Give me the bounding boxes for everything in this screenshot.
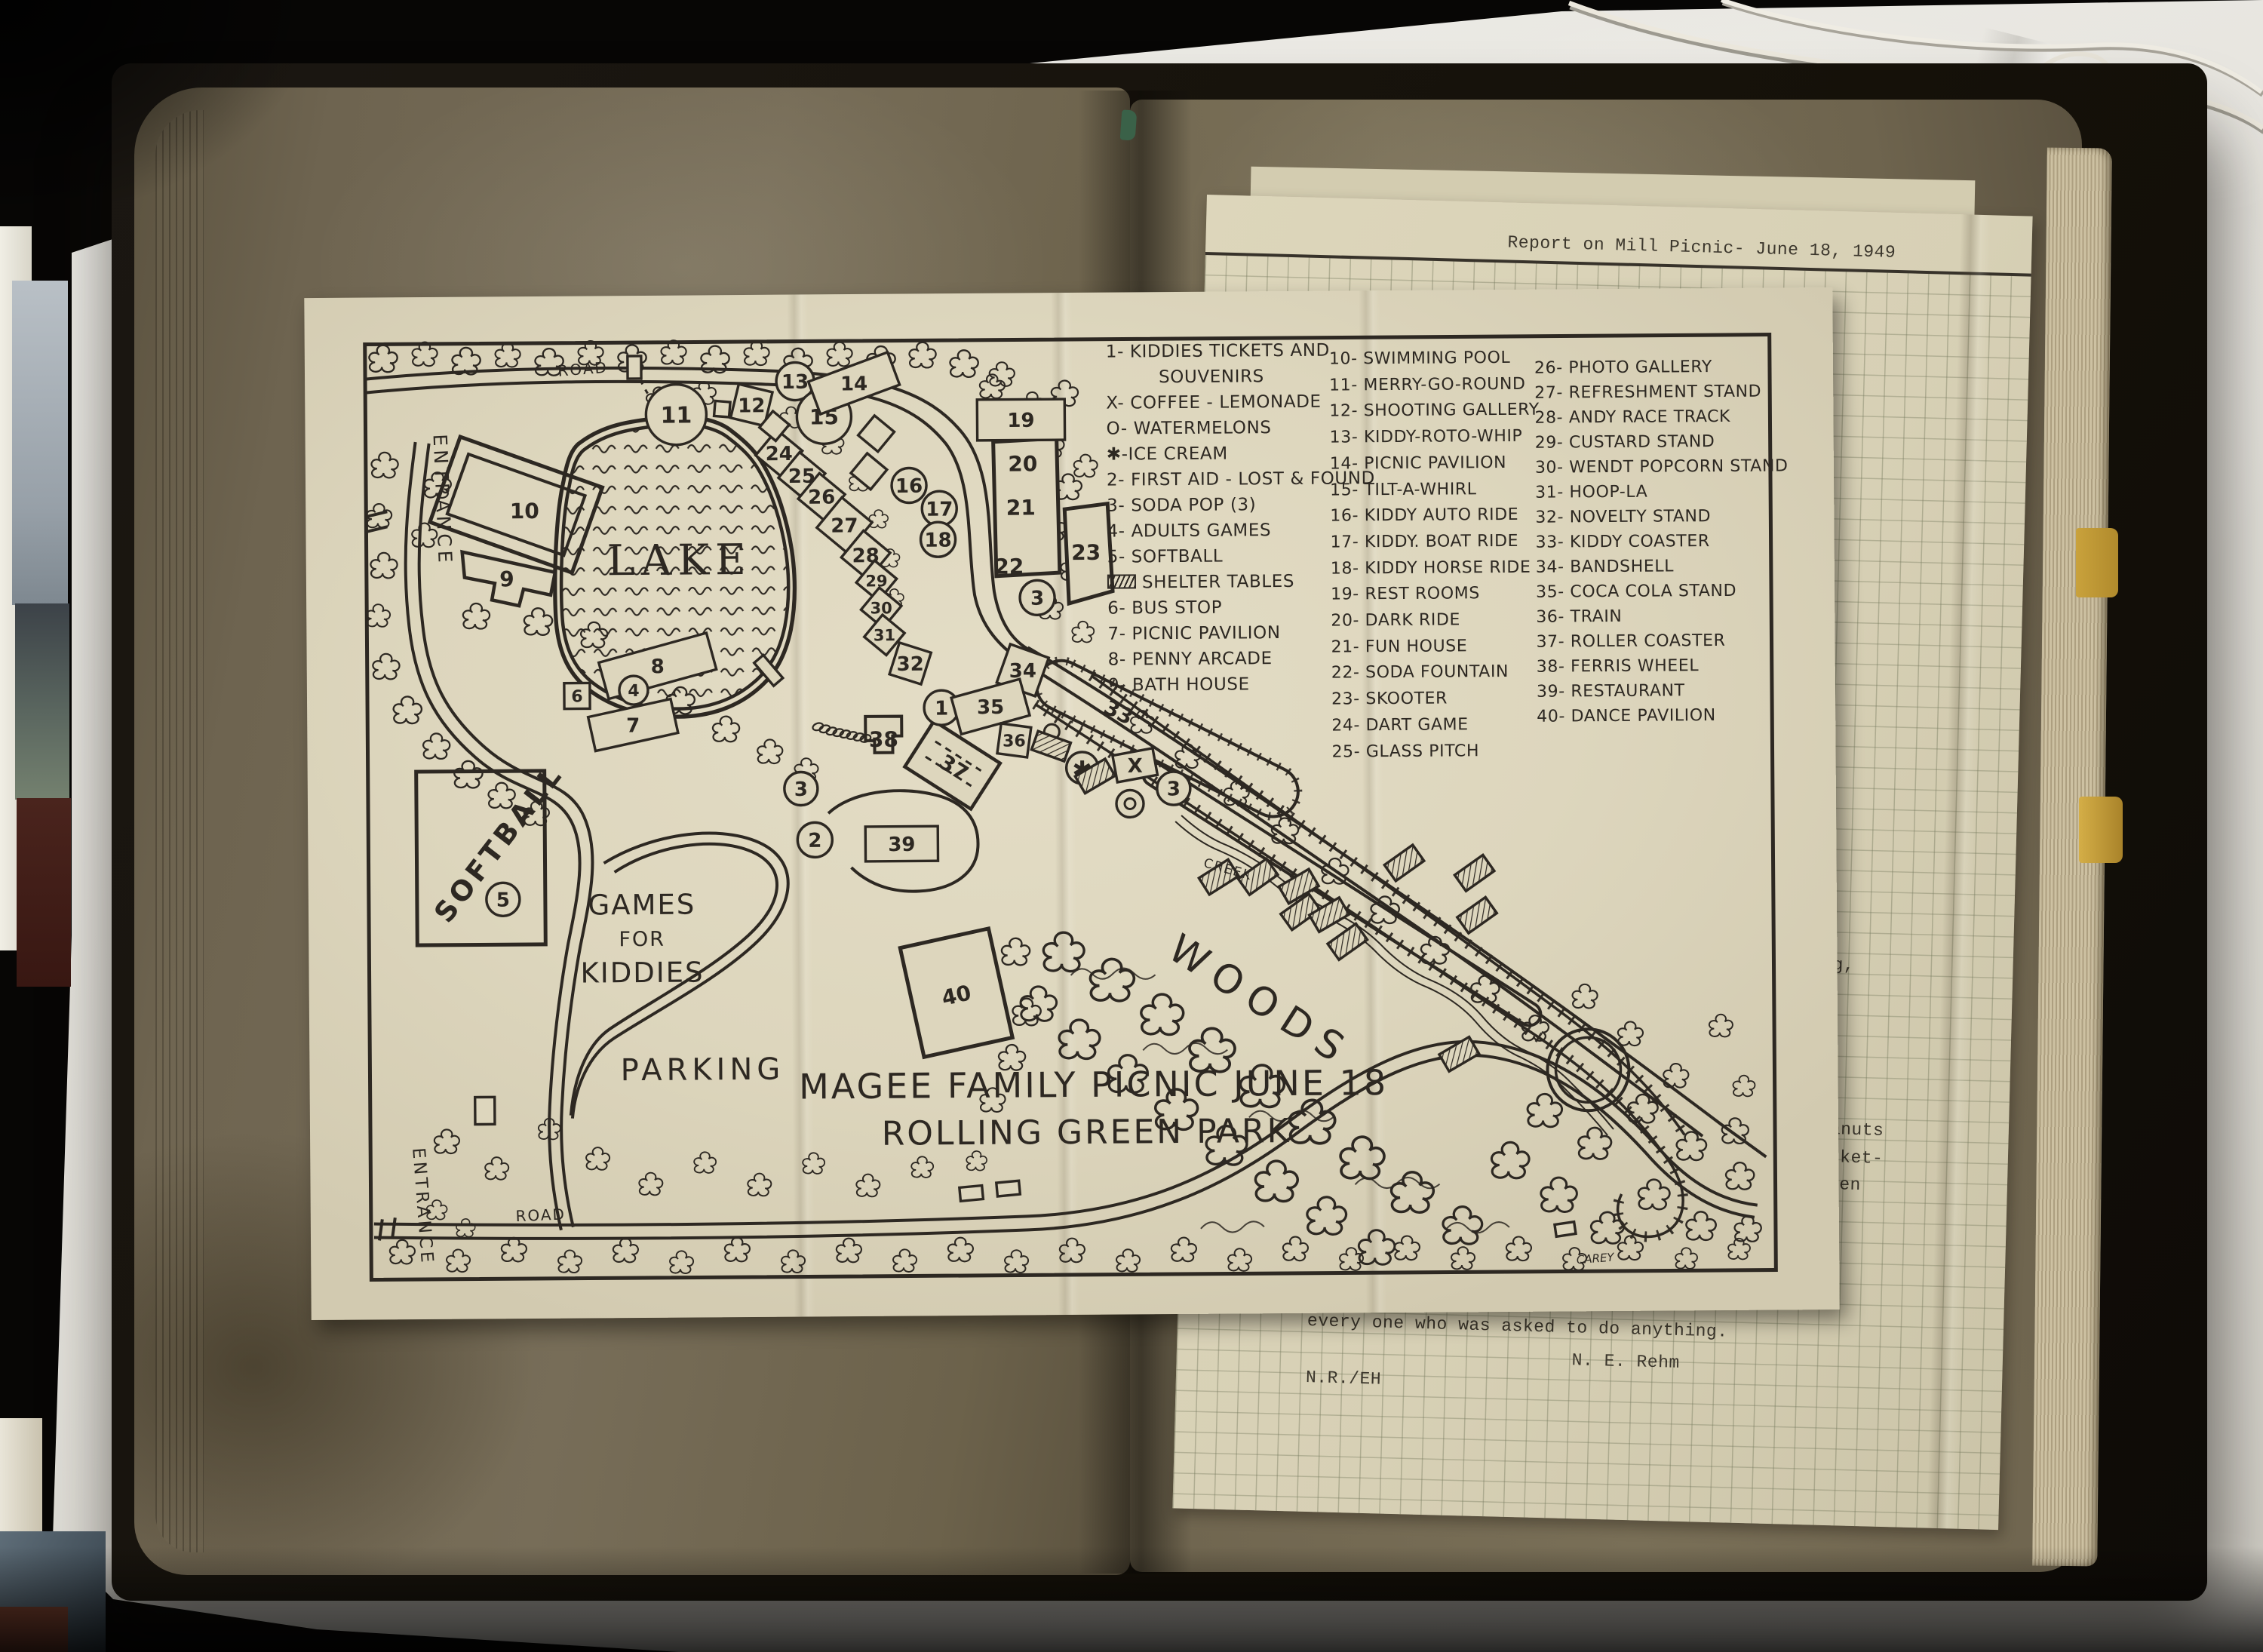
map-marker-18: 18 xyxy=(920,522,955,557)
legend-item: O- WATERMELONS xyxy=(1106,415,1332,442)
legend-item: 12- SHOOTING GALLERY xyxy=(1329,398,1534,425)
map-marker-22: 22 xyxy=(994,554,1024,579)
map-structure xyxy=(858,416,894,452)
lake-label: LAKE xyxy=(606,536,752,585)
road-label-top: ROAD xyxy=(557,358,609,380)
tree-icon xyxy=(1012,999,1040,1026)
map-structure xyxy=(1454,855,1494,891)
svg-text:3: 3 xyxy=(794,778,808,801)
svg-text:22: 22 xyxy=(994,554,1024,579)
legend-item: SOUVENIRS xyxy=(1106,364,1332,391)
map-title-line1: MAGEE FAMILY PICNIC JUNE 18 xyxy=(799,1062,1388,1107)
inserted-photo-edge xyxy=(17,798,71,987)
tree-icon xyxy=(1675,1248,1697,1269)
svg-text:6: 6 xyxy=(571,687,582,706)
tree-icon xyxy=(1451,1247,1475,1270)
svg-text:27: 27 xyxy=(831,514,858,537)
tree-icon xyxy=(748,1174,771,1196)
legend-item: 18- KIDDY HORSE RIDE xyxy=(1331,554,1536,582)
tree-icon xyxy=(725,1238,750,1262)
entrance-label-west: ENTRANCE xyxy=(429,434,456,567)
map-marker-2: 2 xyxy=(797,822,832,857)
report-title: Report on Mill Picnic- June 18, 1949 xyxy=(1507,232,1896,262)
tree-icon xyxy=(950,350,978,377)
legend-item: 15- TILT-A-WHIRL xyxy=(1330,476,1535,504)
tree-icon xyxy=(524,608,552,635)
map-structure xyxy=(628,356,641,379)
legend-item: 35- COCA COLA STAND xyxy=(1536,578,1777,604)
svg-text:10: 10 xyxy=(510,499,539,524)
map-marker-3: 3 xyxy=(1157,772,1190,805)
tree-icon xyxy=(394,696,422,723)
tree-icon xyxy=(1726,1162,1754,1190)
legend-item: 22- SODA FOUNTAIN xyxy=(1331,659,1537,687)
legend-item: 33- KIDDY COASTER xyxy=(1535,528,1776,554)
legend-item: 7- PICNIC PAVILION xyxy=(1107,620,1334,647)
legend-item: 8- PENNY ARCADE xyxy=(1108,646,1334,673)
tree-icon xyxy=(1506,1236,1531,1260)
map-marker-39: 39 xyxy=(865,826,938,861)
tree-icon xyxy=(1359,1230,1395,1265)
tree-icon xyxy=(1072,622,1094,643)
tree-icon xyxy=(371,453,398,478)
tree-icon xyxy=(1228,1248,1251,1271)
legend-item: 31- HOOP-LA xyxy=(1535,478,1776,505)
tree-icon xyxy=(1618,1236,1643,1260)
svg-text:24: 24 xyxy=(766,443,793,465)
map-marker-X: X xyxy=(1113,748,1158,782)
map-marker-17: 17 xyxy=(922,491,956,526)
svg-text:21: 21 xyxy=(1006,495,1036,520)
legend-item: 14- PICNIC PAVILION xyxy=(1330,450,1535,478)
inserted-photo-edge xyxy=(12,281,68,605)
tree-icon xyxy=(827,342,852,367)
legend-item: SHELTER TABLES xyxy=(1107,569,1334,596)
svg-text:1: 1 xyxy=(935,698,948,720)
tree-icon xyxy=(1255,1161,1297,1202)
map-marker-20: 20 xyxy=(1008,451,1037,476)
svg-text:35: 35 xyxy=(977,696,1004,719)
tree-icon xyxy=(1116,1249,1140,1272)
tree-icon xyxy=(1733,1076,1755,1097)
tree-icon xyxy=(1043,932,1084,972)
legend-item: 5- SOFTBALL xyxy=(1107,543,1334,570)
svg-text:18: 18 xyxy=(924,529,951,551)
svg-text:19: 19 xyxy=(1007,410,1034,432)
tree-icon xyxy=(1141,994,1184,1035)
svg-text:26: 26 xyxy=(808,487,835,509)
svg-text:20: 20 xyxy=(1008,451,1037,476)
tree-icon xyxy=(639,1173,662,1196)
svg-text:8: 8 xyxy=(651,656,665,678)
tree-icon xyxy=(1686,1211,1716,1240)
map-marker-3: 3 xyxy=(785,772,818,805)
tree-icon xyxy=(1572,984,1597,1009)
yellow-tab xyxy=(2079,797,2123,863)
tree-icon xyxy=(558,1250,582,1273)
svg-text:3: 3 xyxy=(1030,588,1044,610)
tree-icon xyxy=(837,1239,861,1263)
legend-item: 4- ADULTS GAMES xyxy=(1107,517,1333,545)
tree-icon xyxy=(370,553,397,579)
svg-text:23: 23 xyxy=(1071,540,1101,565)
entrance-label-south: ENTRANCE xyxy=(408,1147,437,1267)
map-structure xyxy=(852,732,864,742)
legend-column-1: 1- KIDDIES TICKETS ANDSOUVENIRSX- COFFEE… xyxy=(1106,338,1334,699)
tree-icon xyxy=(369,345,397,373)
tree-icon xyxy=(1340,1137,1384,1179)
svg-text:29: 29 xyxy=(865,572,887,590)
tree-icon xyxy=(367,604,390,627)
tree-icon xyxy=(434,1129,459,1153)
tree-icon xyxy=(447,1249,470,1272)
map-structure xyxy=(996,1181,1021,1196)
map-structure xyxy=(1457,897,1497,933)
legend-item: 29- CUSTARD STAND xyxy=(1535,428,1776,455)
games-label-1: GAMES xyxy=(588,888,695,921)
tree-icon xyxy=(1060,1239,1085,1263)
svg-text:32: 32 xyxy=(897,653,924,676)
legend-column-2: 10- SWIMMING POOL11- MERRY-GO-ROUND12- S… xyxy=(1329,345,1537,766)
tree-icon xyxy=(966,1151,987,1171)
tree-icon xyxy=(423,733,450,759)
legend-item: 38- FERRIS WHEEL xyxy=(1537,653,1778,679)
tree-icon xyxy=(757,739,782,763)
artist-signature: CAREY xyxy=(1576,1250,1616,1267)
svg-text:7: 7 xyxy=(626,714,640,737)
parking-label: PARKING xyxy=(620,1052,785,1089)
map-marker-11: 11 xyxy=(646,384,707,445)
svg-text:17: 17 xyxy=(926,498,953,520)
tree-icon xyxy=(781,1250,805,1273)
legend-item: 16- KIDDY AUTO RIDE xyxy=(1330,502,1535,530)
tree-icon xyxy=(911,1156,933,1178)
tree-icon xyxy=(803,1153,824,1174)
map-marker-16: 16 xyxy=(892,468,926,502)
tree-icon xyxy=(1002,938,1030,966)
legend-item: 40- DANCE PAVILION xyxy=(1537,702,1778,729)
map-structure xyxy=(475,1097,495,1124)
tree-icon xyxy=(1307,1197,1346,1235)
svg-text:39: 39 xyxy=(888,834,915,856)
tree-icon xyxy=(502,1238,527,1262)
tree-icon xyxy=(1528,1094,1562,1127)
tree-icon xyxy=(495,343,520,367)
svg-text:11: 11 xyxy=(660,402,692,428)
map-marker-4: 4 xyxy=(619,676,648,705)
legend-item: 6- BUS STOP xyxy=(1107,594,1334,622)
legend-item: 34- BANDSHELL xyxy=(1536,553,1777,579)
tree-icon xyxy=(1283,1236,1308,1260)
legend-item: 26- PHOTO GALLERY xyxy=(1534,354,1776,380)
tree-icon xyxy=(893,1249,917,1272)
svg-text:4: 4 xyxy=(628,682,639,701)
road-label-bottom: ROAD xyxy=(515,1205,566,1225)
legend-item: 28- ANDY RACE TRACK xyxy=(1534,404,1776,430)
legend-item: 39- RESTAURANT xyxy=(1537,677,1778,704)
svg-text:38: 38 xyxy=(869,727,898,752)
map-marker-3: 3 xyxy=(1020,580,1055,615)
legend-item: 25- GLASS PITCH xyxy=(1331,738,1537,766)
inserted-photo-edge xyxy=(0,1607,68,1652)
tree-icon xyxy=(613,1239,638,1263)
tree-icon xyxy=(909,342,935,368)
legend-item: 9- BATH HOUSE xyxy=(1108,671,1334,699)
map-marker-21: 21 xyxy=(1006,495,1036,520)
map-structure xyxy=(1384,845,1424,881)
tree-icon xyxy=(1059,1020,1100,1059)
tree-icon xyxy=(1005,1250,1028,1273)
report-author: N. E. Rehm xyxy=(1571,1350,1680,1373)
map-marker-23: 23 xyxy=(1071,540,1101,565)
park-map-sheet: 1091113151412161718192021222332425262728… xyxy=(304,287,1839,1320)
svg-text:2: 2 xyxy=(808,830,821,852)
report-initials: N.R./EH xyxy=(1306,1368,1382,1389)
tree-icon xyxy=(1171,1237,1196,1261)
tree-icon xyxy=(1395,1236,1420,1260)
svg-text:14: 14 xyxy=(840,373,867,395)
svg-text:31: 31 xyxy=(874,626,895,644)
games-label-3: KIDDIES xyxy=(580,956,704,989)
tree-icon xyxy=(456,1219,475,1237)
legend-item: 27- REFRESHMENT STAND xyxy=(1534,379,1776,405)
map-marker-10: 10 xyxy=(510,499,539,524)
tree-icon xyxy=(373,654,399,680)
tree-icon xyxy=(869,510,888,528)
legend-item: 19- REST ROOMS xyxy=(1331,581,1536,609)
games-label-2: FOR xyxy=(619,928,665,951)
shelter-table-swatch-icon xyxy=(1107,574,1136,588)
map-marker-6: 6 xyxy=(564,683,590,708)
tree-icon xyxy=(1578,1128,1611,1159)
map-marker-7: 7 xyxy=(588,699,678,751)
legend-item: 13- KIDDY-ROTO-WHIP xyxy=(1330,424,1535,452)
tree-icon xyxy=(856,1175,880,1197)
map-structure xyxy=(846,731,858,741)
svg-text:34: 34 xyxy=(1009,660,1036,683)
green-tab xyxy=(1120,109,1138,140)
tree-icon xyxy=(744,341,769,365)
map-structure xyxy=(1555,1222,1576,1237)
map-marker-9: 9 xyxy=(499,567,514,591)
tree-icon xyxy=(1618,1021,1643,1046)
svg-text:5: 5 xyxy=(496,889,510,912)
legend-item: 21- FUN HOUSE xyxy=(1331,633,1536,661)
tree-icon xyxy=(1638,1179,1670,1209)
legend-item: 37- ROLLER COASTER xyxy=(1536,628,1777,654)
map-marker-38: 38 xyxy=(869,727,898,752)
tree-icon xyxy=(1709,1015,1733,1037)
svg-text:13: 13 xyxy=(781,371,809,394)
map-structure xyxy=(714,401,730,417)
legend-column-3: 26- PHOTO GALLERY27- REFRESHMENT STAND28… xyxy=(1534,354,1778,729)
map-structure xyxy=(960,1186,984,1202)
map-title-line2: ROLLING GREEN PARK xyxy=(882,1112,1291,1153)
tree-icon xyxy=(1074,455,1098,477)
tree-icon xyxy=(463,603,490,629)
legend-item: ✱-ICE CREAM xyxy=(1107,441,1333,468)
inserted-photo-edge xyxy=(15,603,69,800)
map-marker-5: 5 xyxy=(487,883,520,916)
tree-icon xyxy=(1541,1178,1577,1212)
legend-item: 3- SODA POP (3) xyxy=(1107,492,1333,519)
svg-text:X: X xyxy=(1128,755,1143,778)
tree-icon xyxy=(485,1157,508,1180)
map-structure xyxy=(825,726,837,736)
map-marker-19: 19 xyxy=(977,399,1064,441)
legend-item: 17- KIDDY. BOAT RIDE xyxy=(1330,529,1535,557)
legend-item: 20- DARK RIDE xyxy=(1331,607,1536,635)
tree-icon xyxy=(1443,1206,1482,1244)
legend-item: 1- KIDDIES TICKETS AND xyxy=(1106,338,1332,365)
map-structure xyxy=(1116,790,1144,817)
tree-icon xyxy=(586,1147,610,1170)
map-marker-14: 14 xyxy=(808,352,900,414)
legend-item: 32- NOVELTY STAND xyxy=(1535,503,1776,530)
tree-icon xyxy=(454,761,482,788)
tree-icon xyxy=(694,1152,716,1173)
tree-icon xyxy=(713,717,739,742)
map-structure xyxy=(839,729,851,739)
svg-text:16: 16 xyxy=(895,475,923,498)
legend-item: 24- DART GAME xyxy=(1331,712,1537,740)
svg-text:33: 33 xyxy=(1100,695,1138,730)
legend-item: X- COFFEE - LEMONADE xyxy=(1106,389,1332,416)
tree-icon xyxy=(1491,1142,1529,1178)
legend-item: 36- TRAIN xyxy=(1536,603,1777,629)
svg-text:3: 3 xyxy=(1167,778,1181,800)
map-structure xyxy=(851,453,887,490)
svg-text:36: 36 xyxy=(1003,732,1026,751)
tree-icon xyxy=(948,1238,973,1262)
legend-item: 30- WENDT POPCORN STAND xyxy=(1535,453,1776,480)
svg-text:12: 12 xyxy=(738,395,765,417)
legend-item: 23- SKOOTER xyxy=(1331,686,1537,714)
tree-icon xyxy=(1090,959,1134,1001)
legend-item: 11- MERRY-GO-ROUND xyxy=(1329,371,1534,399)
tree-icon xyxy=(670,1251,693,1273)
scrapbook-photo: Report on Mill Picnic- June 18, 1949 g, … xyxy=(0,0,2263,1652)
legend-item: 10- SWIMMING POOL xyxy=(1329,345,1534,373)
map-structure xyxy=(832,728,844,738)
map-structure xyxy=(1031,731,1070,762)
tree-icon xyxy=(390,1240,415,1264)
svg-text:9: 9 xyxy=(499,567,514,591)
map-marker-33: 33 xyxy=(1100,694,1138,729)
yellow-tab xyxy=(2076,528,2118,597)
legend-item: 2- FIRST AID - LOST & FOUND xyxy=(1107,466,1333,493)
map-marker-36: 36 xyxy=(997,723,1031,757)
map-marker-32: 32 xyxy=(889,643,932,685)
